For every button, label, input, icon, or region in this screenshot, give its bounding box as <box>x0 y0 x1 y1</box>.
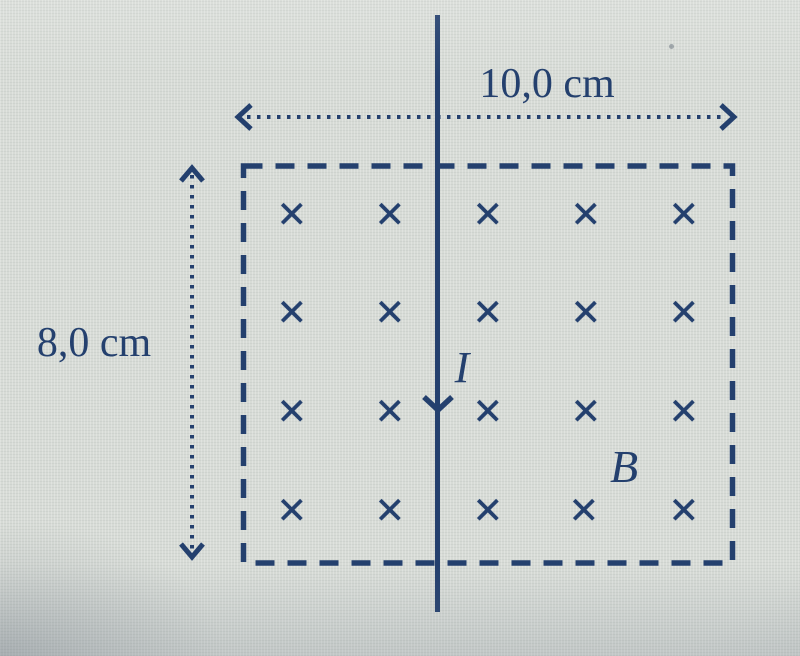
field-mark: × <box>277 485 307 537</box>
field-mark: × <box>669 287 699 339</box>
field-mark: × <box>277 386 307 438</box>
current-label: I <box>455 346 470 390</box>
photo-background: 10,0 cm 8,0 cm I B × × × × × × × × × × ×… <box>0 0 800 656</box>
field-mark: × <box>277 287 307 339</box>
field-mark: × <box>375 287 405 339</box>
field-mark: × <box>375 189 405 241</box>
field-mark: × <box>669 386 699 438</box>
field-mark: × <box>473 386 503 438</box>
field-mark: × <box>571 386 601 438</box>
width-label: 10,0 cm <box>479 63 614 105</box>
field-label: B <box>610 444 638 490</box>
field-mark: × <box>571 189 601 241</box>
field-mark: × <box>473 485 503 537</box>
width-arrow-right-icon <box>721 105 734 129</box>
field-mark: × <box>473 287 503 339</box>
field-mark: × <box>569 485 599 537</box>
height-arrow-top-icon <box>181 168 203 181</box>
field-mark: × <box>375 485 405 537</box>
field-mark: × <box>669 189 699 241</box>
field-mark: × <box>571 287 601 339</box>
field-mark: × <box>473 189 503 241</box>
field-mark: × <box>375 386 405 438</box>
field-mark: × <box>669 485 699 537</box>
height-label: 8,0 cm <box>37 322 151 364</box>
field-mark: × <box>277 189 307 241</box>
photo-speck <box>669 44 674 49</box>
